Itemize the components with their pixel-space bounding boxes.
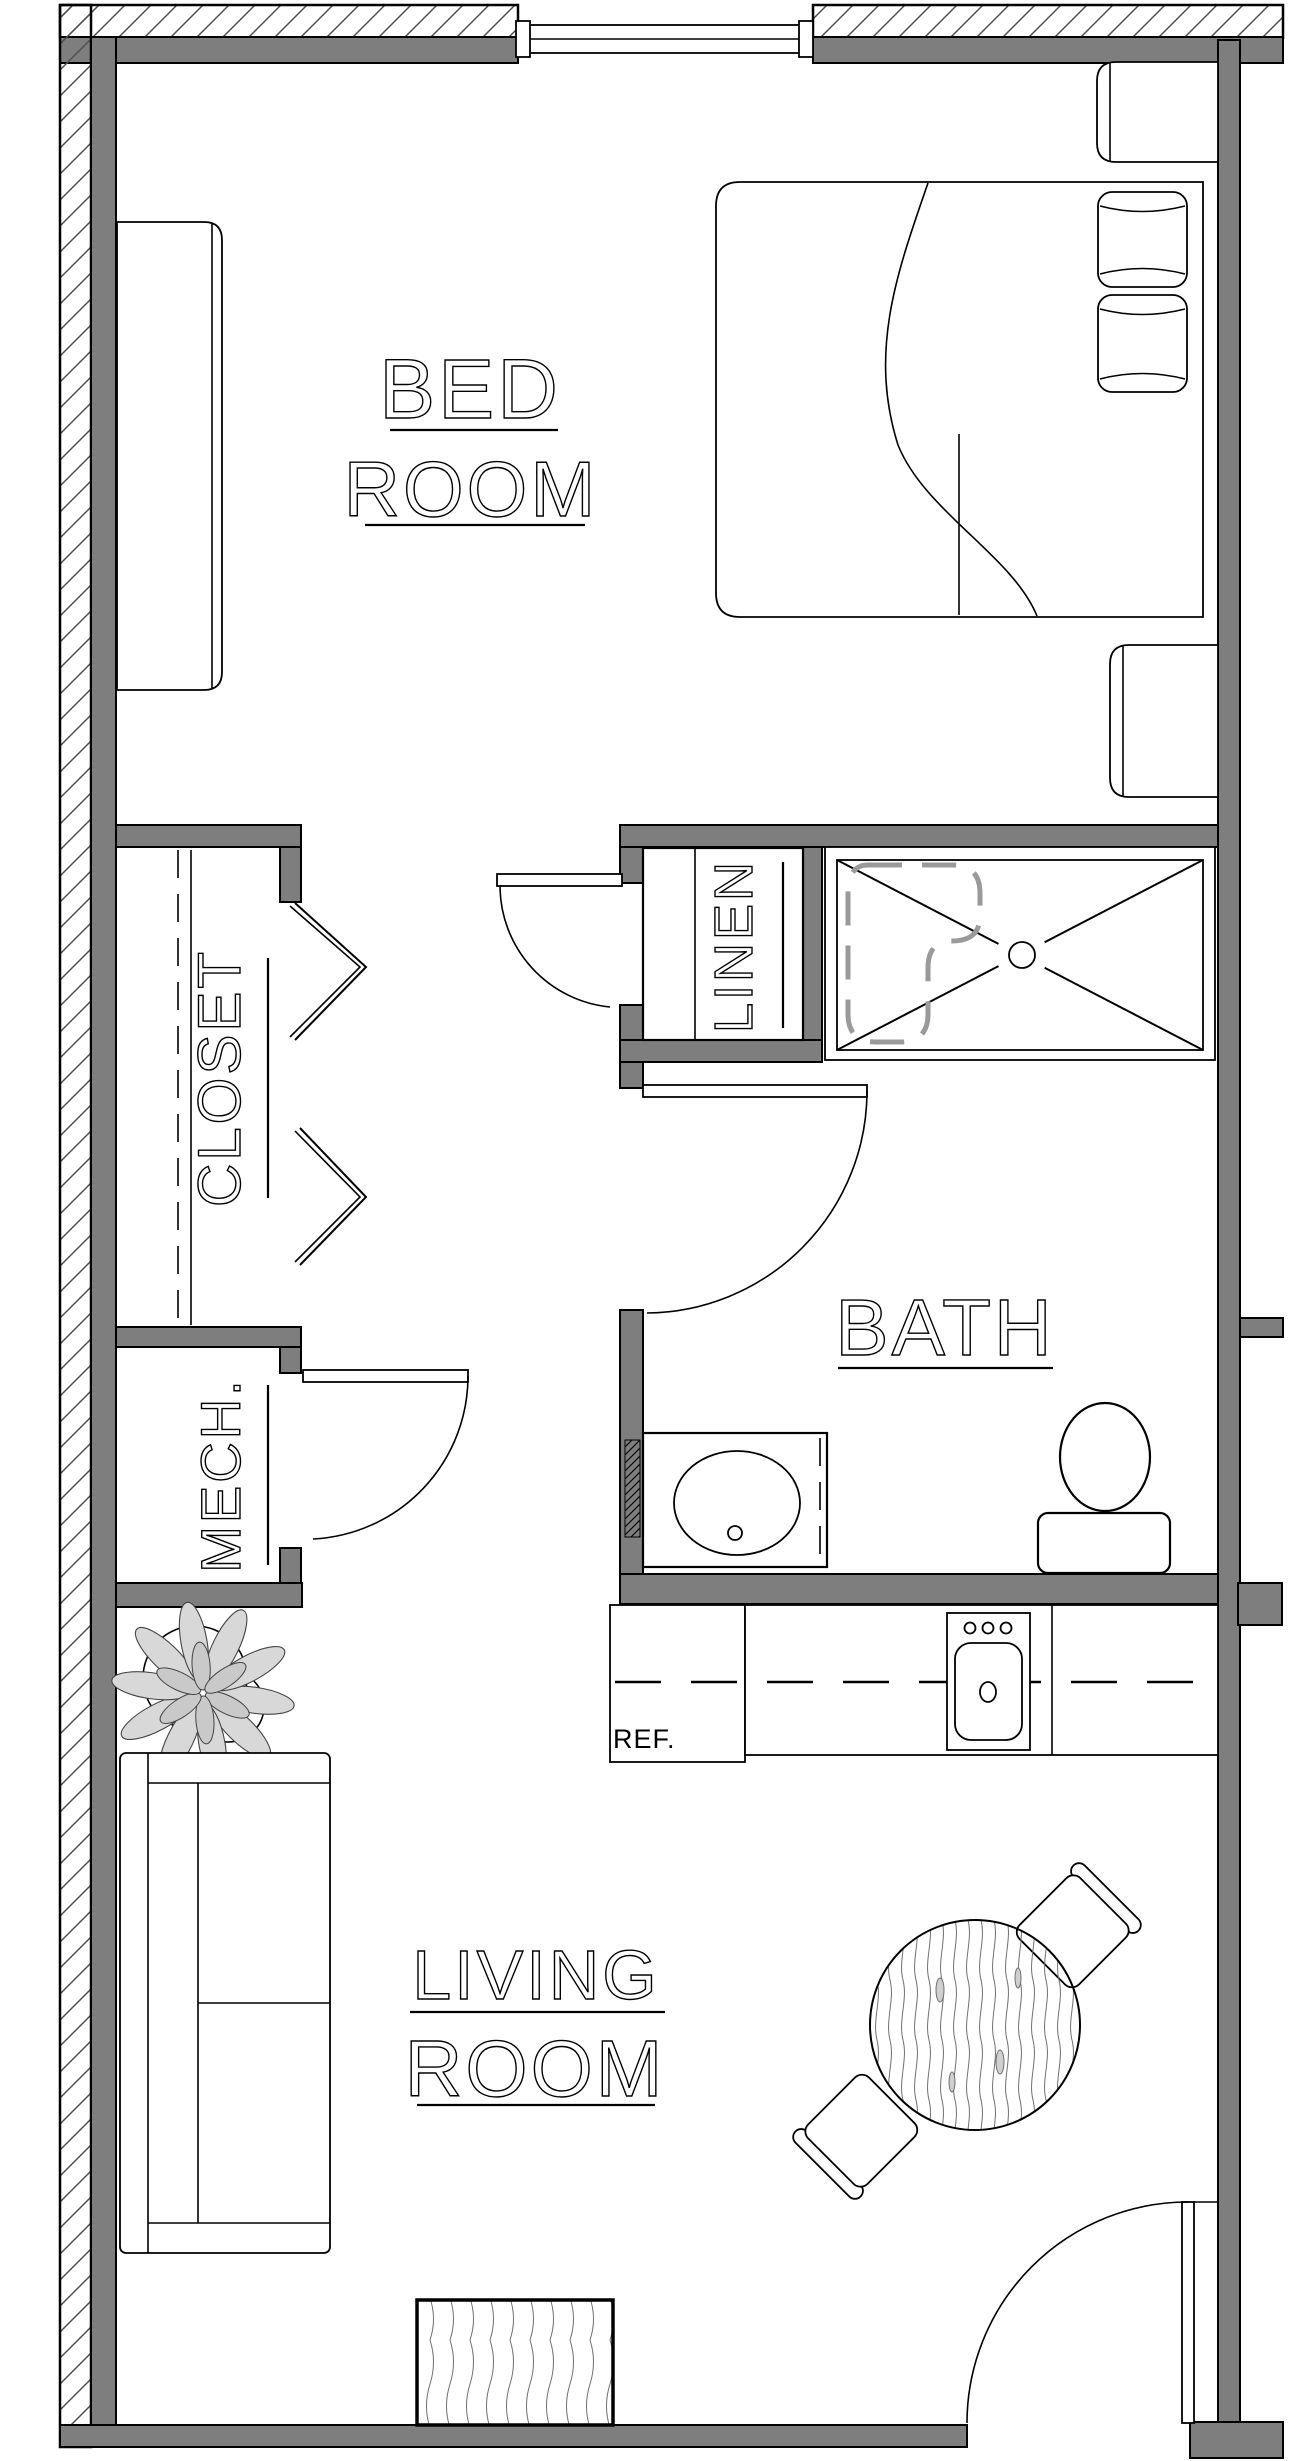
window-jamb-right [799, 21, 813, 57]
top-wall-gray-left [60, 37, 518, 63]
floor-plan-drawing: BED ROOM CLOSET LINEN BATH MECH. REF. LI… [0, 0, 1308, 2461]
mech-door-bottom-stub [280, 1548, 301, 1583]
hall-door-leaf [497, 874, 622, 886]
closet-label: CLOSET [186, 949, 253, 1207]
toilet [1038, 1403, 1170, 1573]
entry-mat [417, 2300, 613, 2425]
bath-door [643, 1085, 867, 1313]
closet-bifold-doors [290, 903, 366, 1265]
dresser [117, 222, 222, 690]
wood-knot [1015, 1968, 1021, 1988]
nightstand [1110, 645, 1218, 797]
plumbing-wall-hatch [625, 1440, 640, 1537]
mech-door-swing-arc [313, 1376, 468, 1539]
living-label-line2: ROOM [405, 2024, 666, 2113]
bedroom-south-wall-left [116, 825, 301, 847]
window [516, 21, 813, 57]
right-wall [1218, 40, 1240, 2422]
bedroom-label-line2: ROOM [344, 445, 599, 533]
bottom-right-corner-block [1190, 2422, 1283, 2458]
mech-label: MECH. [189, 1377, 252, 1572]
bath-door-swing-arc [647, 1091, 867, 1313]
hall-door [497, 874, 622, 1007]
top-wall-gray-right [813, 37, 1283, 63]
wood-knot [936, 1978, 944, 2002]
living-label-line1: LIVING [412, 1936, 660, 2014]
kitchen-sink [947, 1613, 1030, 1750]
pillow [1098, 192, 1187, 287]
entry-door-swing-arc [967, 2202, 1188, 2423]
mech-door [303, 1370, 468, 1539]
top-wall-hatch-right [813, 5, 1283, 38]
wood-knot [996, 2050, 1004, 2074]
bedroom-label-line1: BED [379, 342, 561, 436]
floor-plan-page: BED ROOM CLOSET LINEN BATH MECH. REF. LI… [0, 0, 1308, 2461]
linen-label: LINEN [704, 859, 764, 1033]
closet-bottom-wall [116, 1327, 301, 1347]
bath-door-leaf [643, 1085, 867, 1097]
wood-knot [949, 2072, 955, 2092]
sofa [120, 1753, 330, 2253]
linen-south-wall [620, 1040, 822, 1062]
dining-table [870, 1920, 1080, 2130]
nightstand [1097, 62, 1218, 162]
kitchen-north-wall [620, 1574, 1218, 1604]
top-wall-hatch-left [60, 5, 518, 38]
shower-drain [1009, 942, 1035, 968]
faucet-knob [983, 1623, 994, 1634]
left-wall-hatch [60, 5, 91, 2447]
faucet-knob [965, 1623, 976, 1634]
kitchen [610, 1605, 1218, 1762]
bedroom-south-wall-right [620, 825, 1218, 847]
mech-bottom-wall [116, 1583, 302, 1607]
dining-set [790, 1860, 1144, 2202]
shower [825, 847, 1215, 1060]
entry-door-leaf [1182, 2202, 1194, 2423]
vanity-sink [643, 1433, 827, 1567]
bath-label: BATH [835, 1283, 1054, 1372]
bed [716, 182, 1203, 617]
toilet-tank [1038, 1513, 1170, 1573]
pillow [1098, 295, 1187, 392]
closet-jamb-stub [280, 847, 301, 902]
hall-door-swing-arc [500, 886, 610, 1007]
toilet-bowl [1060, 1403, 1150, 1511]
vanity-drain [728, 1526, 742, 1540]
right-wall-stub [1240, 1318, 1283, 1337]
left-wall-gray [91, 37, 116, 2447]
sink-drain [980, 1682, 996, 1702]
right-wall-pilaster [1238, 1583, 1282, 1625]
mech-door-leaf [303, 1370, 468, 1382]
bottom-wall [60, 2425, 967, 2447]
mech-door-top-stub [280, 1347, 301, 1373]
faucet-knob [1001, 1623, 1012, 1634]
linen-west-stub-upper [620, 847, 643, 883]
window-jamb-left [516, 21, 530, 57]
entry-door [967, 2202, 1218, 2423]
refrigerator-label: REF. [613, 1724, 676, 1754]
